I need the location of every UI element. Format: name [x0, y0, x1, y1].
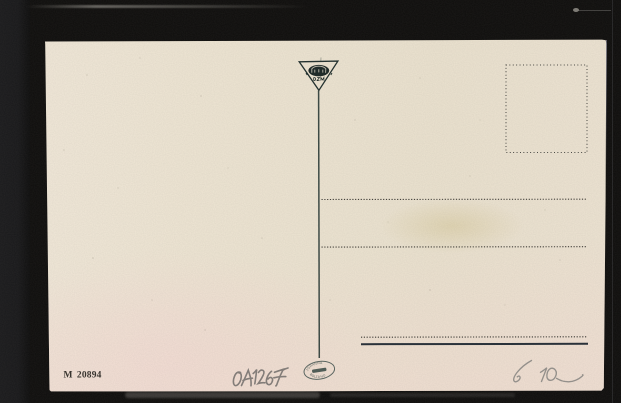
- svg-text:M 20894: M 20894: [64, 371, 102, 381]
